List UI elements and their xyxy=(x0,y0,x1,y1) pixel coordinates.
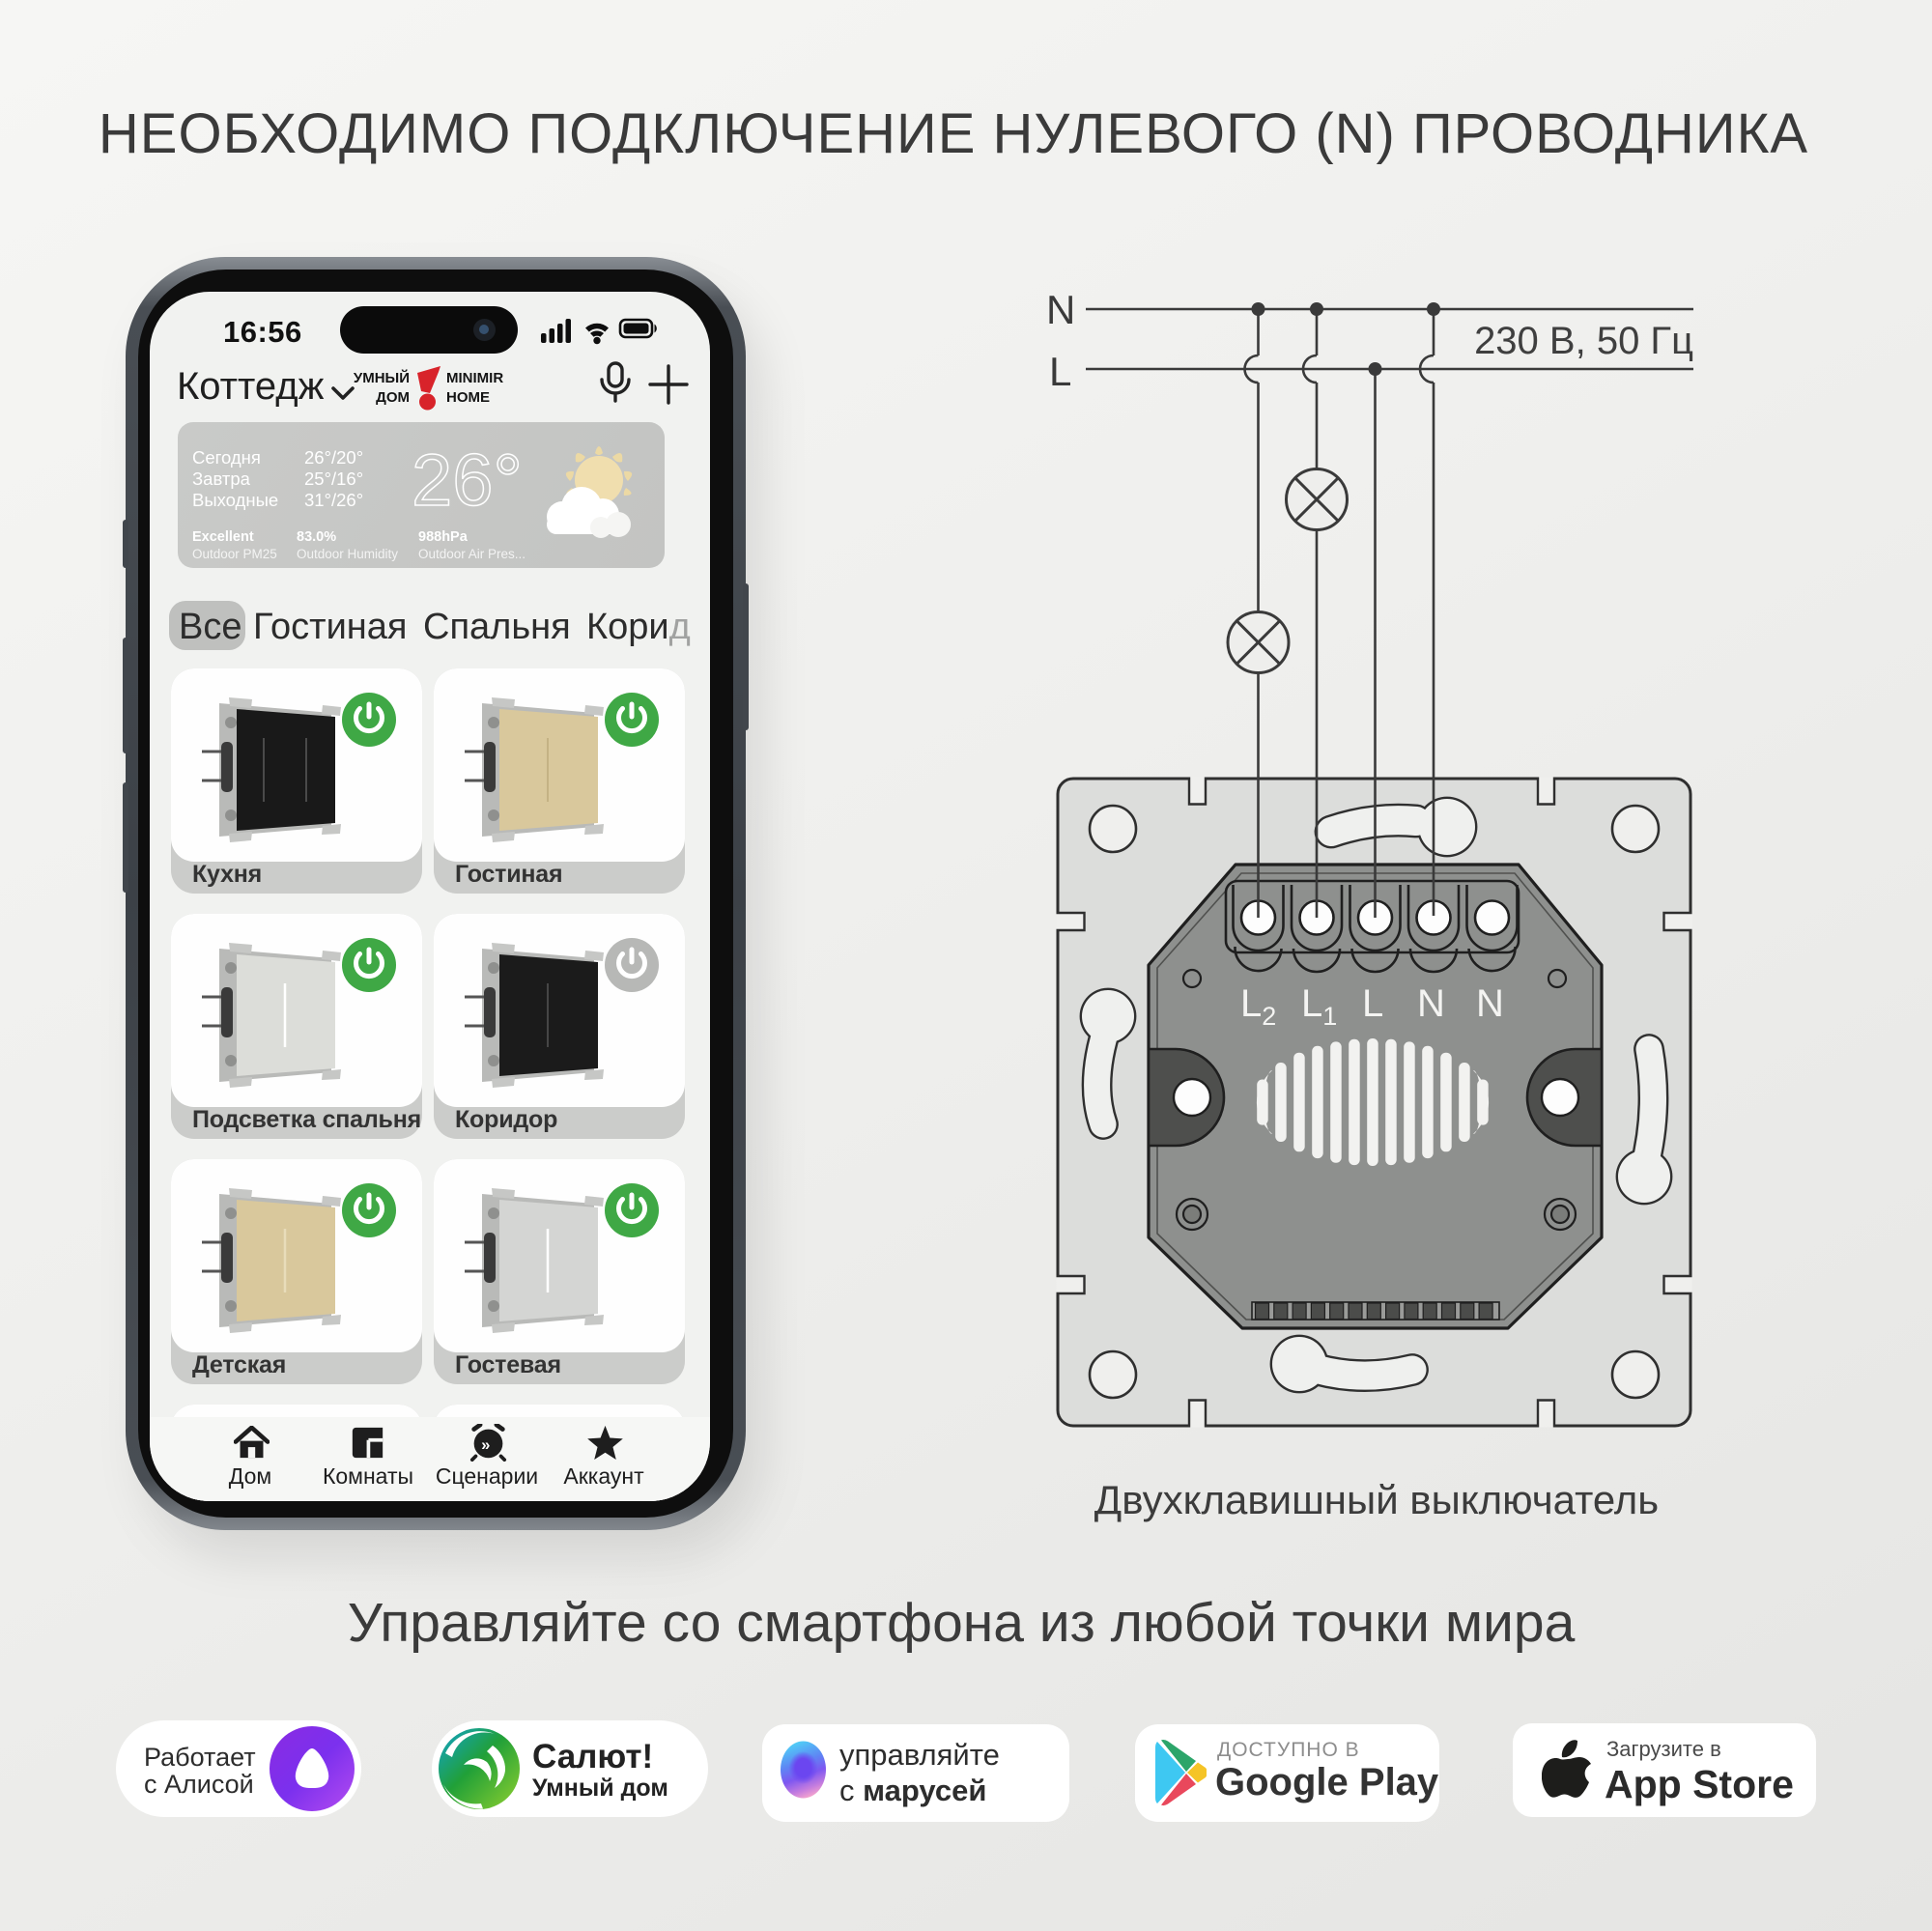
svg-text:L: L xyxy=(1049,349,1071,394)
svg-text:L: L xyxy=(1362,982,1383,1025)
svg-text:N: N xyxy=(1476,982,1504,1025)
svg-text:N: N xyxy=(1417,982,1445,1025)
svg-text:N: N xyxy=(1046,287,1075,332)
svg-text:230 В, 50 Гц: 230 В, 50 Гц xyxy=(1474,320,1693,362)
svg-text:»: » xyxy=(481,1435,490,1454)
